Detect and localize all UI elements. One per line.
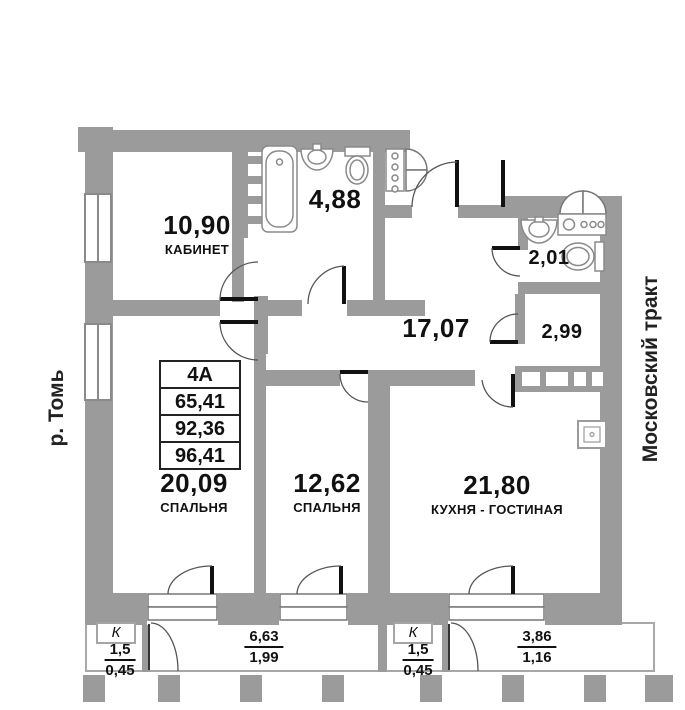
room-area: 21,80 [431,472,563,498]
bathtub-icon [262,146,297,232]
room-area: 20,09 [160,470,228,496]
sink-icon [301,144,333,170]
balcony-areas: 3,86 1,16 [517,628,556,667]
room-name: СПАЛЬНЯ [293,500,361,516]
balcony-area-bottom: 0,45 [403,661,434,679]
balcony-door-sill [148,594,544,620]
balcony-area-bottom: 1,16 [517,648,556,666]
room-area: 12,62 [293,470,361,496]
sink-icon [521,217,557,243]
street-label-right: Московский тракт [639,276,663,463]
room-label-office: 10,90 КАБИНЕТ [163,212,231,258]
electrical-panel-icon [578,421,606,448]
wardrobe-icon [386,149,427,192]
room-label-bathroom: 4,88 [309,186,362,212]
washing-machine-icon [558,214,606,235]
floor-plan: р. Томь Московский тракт 10,90 КАБИНЕТ 4… [0,0,685,710]
toilet-icon [345,147,370,184]
area-value: 65,41 [161,387,239,414]
balcony-area-top: 1,5 [403,641,434,661]
room-name: СПАЛЬНЯ [160,500,228,516]
room-label-toilet: 2,01 [529,248,570,268]
balcony-area-top: 3,86 [517,628,556,648]
street-label-left: р. Томь [45,370,69,447]
balcony-area-top: 6,63 [244,628,283,648]
room-name: КАБИНЕТ [163,242,231,258]
room-area: 2,01 [529,248,570,268]
balcony-area-bottom: 0,45 [105,661,136,679]
room-label-storage: 2,99 [542,322,583,342]
area-value: 92,36 [161,414,239,441]
balcony-area-bottom: 1,99 [244,648,283,666]
room-area: 10,90 [163,212,231,238]
room-area: 4,88 [309,186,362,212]
vent-shaft-icon [522,372,603,386]
balcony-area-top: 1,5 [105,641,136,661]
room-name: КУХНЯ - ГОСТИНАЯ [431,502,563,518]
balcony-areas: 6,63 1,99 [244,628,283,667]
plan-symbols [0,0,685,710]
room-label-kitchen-living: 21,80 КУХНЯ - ГОСТИНАЯ [431,472,563,518]
room-label-bedroom-2: 12,62 СПАЛЬНЯ [293,470,361,516]
room-label-bedroom-1: 20,09 СПАЛЬНЯ [160,470,228,516]
room-label-hallway: 17,07 [402,315,470,341]
balcony-areas: 1,5 0,45 [403,641,434,680]
unit-number: 4А [161,362,239,387]
door-swing-icon [560,191,606,214]
balcony-areas: 1,5 0,45 [105,641,136,680]
room-area: 2,99 [542,322,583,342]
room-area: 17,07 [402,315,470,341]
unit-info-table: 4А 65,41 92,36 96,41 [159,360,241,470]
area-value: 96,41 [161,441,239,468]
towel-rail-icon [240,150,262,238]
